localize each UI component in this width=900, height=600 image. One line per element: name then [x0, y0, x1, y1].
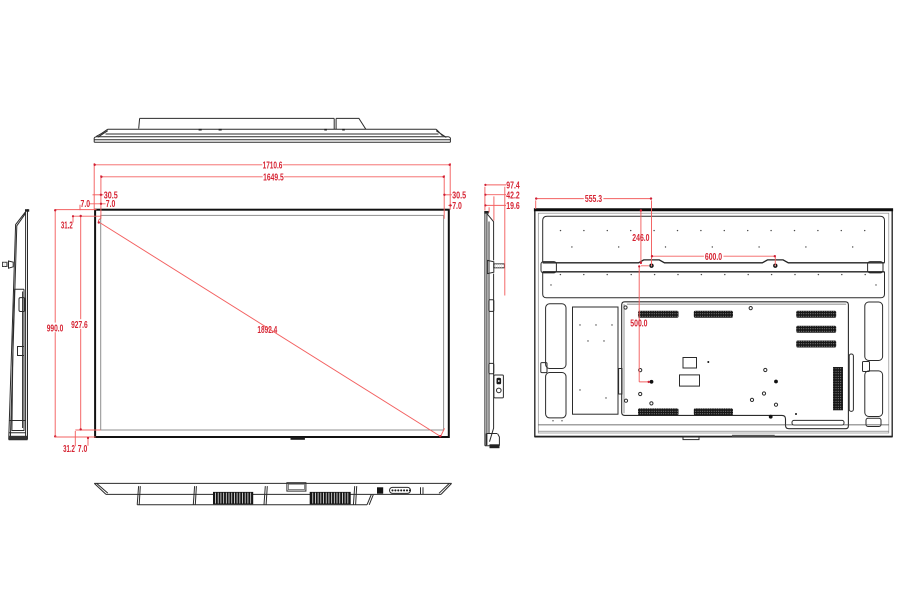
svg-text:600.0: 600.0: [705, 252, 722, 263]
svg-text:42.2: 42.2: [506, 190, 520, 201]
svg-text:31.2: 31.2: [63, 444, 75, 455]
svg-text:19.6: 19.6: [506, 201, 520, 212]
svg-text:500.0: 500.0: [630, 319, 647, 330]
svg-text:7.0: 7.0: [106, 199, 116, 210]
svg-text:31.2: 31.2: [61, 220, 73, 231]
svg-text:1892.4: 1892.4: [257, 325, 277, 336]
svg-text:555.3: 555.3: [585, 194, 602, 205]
svg-text:990.0: 990.0: [47, 323, 64, 334]
svg-text:7.0: 7.0: [452, 201, 462, 212]
svg-text:927.6: 927.6: [71, 320, 88, 331]
svg-text:7.0: 7.0: [81, 199, 91, 210]
svg-text:30.5: 30.5: [452, 190, 466, 201]
svg-text:246.0: 246.0: [632, 233, 649, 244]
svg-text:7.0: 7.0: [78, 444, 88, 455]
svg-text:1649.5: 1649.5: [263, 172, 284, 183]
svg-text:1710.6: 1710.6: [263, 160, 283, 171]
